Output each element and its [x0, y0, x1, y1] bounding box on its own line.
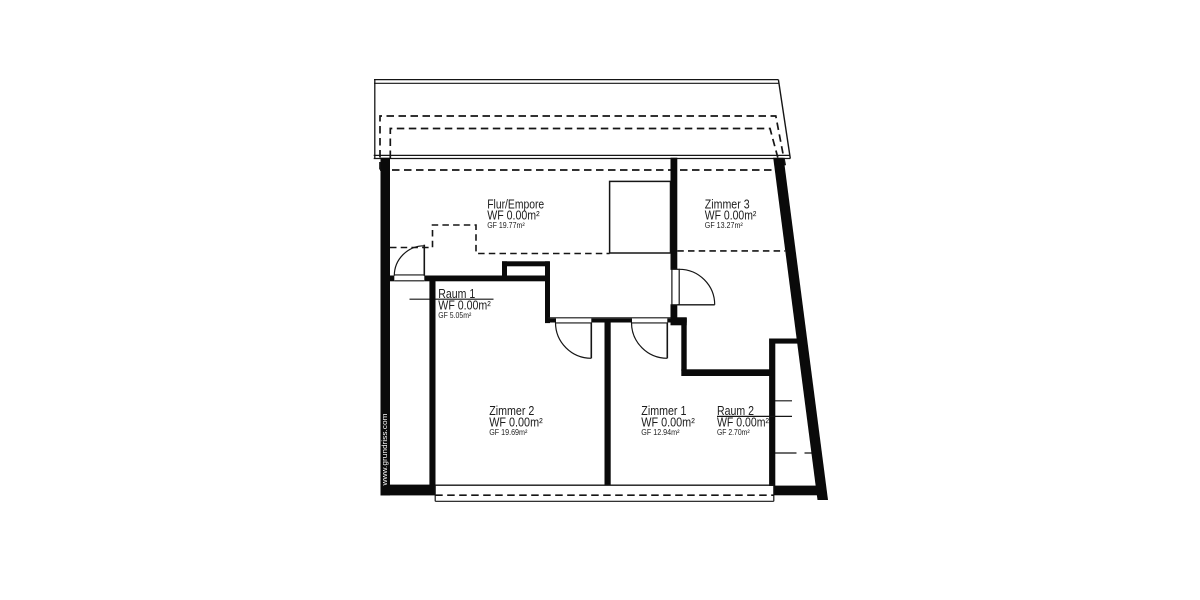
svg-text:GF 12.94m²: GF 12.94m²: [641, 428, 680, 437]
svg-text:GF 19.69m²: GF 19.69m²: [489, 428, 528, 437]
svg-text:GF 13.27m²: GF 13.27m²: [705, 221, 743, 230]
svg-text:GF 5.05m²: GF 5.05m²: [438, 311, 471, 320]
svg-text:www.grundriss.com: www.grundriss.com: [380, 414, 389, 487]
svg-text:GF 2.70m²: GF 2.70m²: [717, 428, 750, 437]
svg-text:GF 19.77m²: GF 19.77m²: [487, 221, 525, 230]
